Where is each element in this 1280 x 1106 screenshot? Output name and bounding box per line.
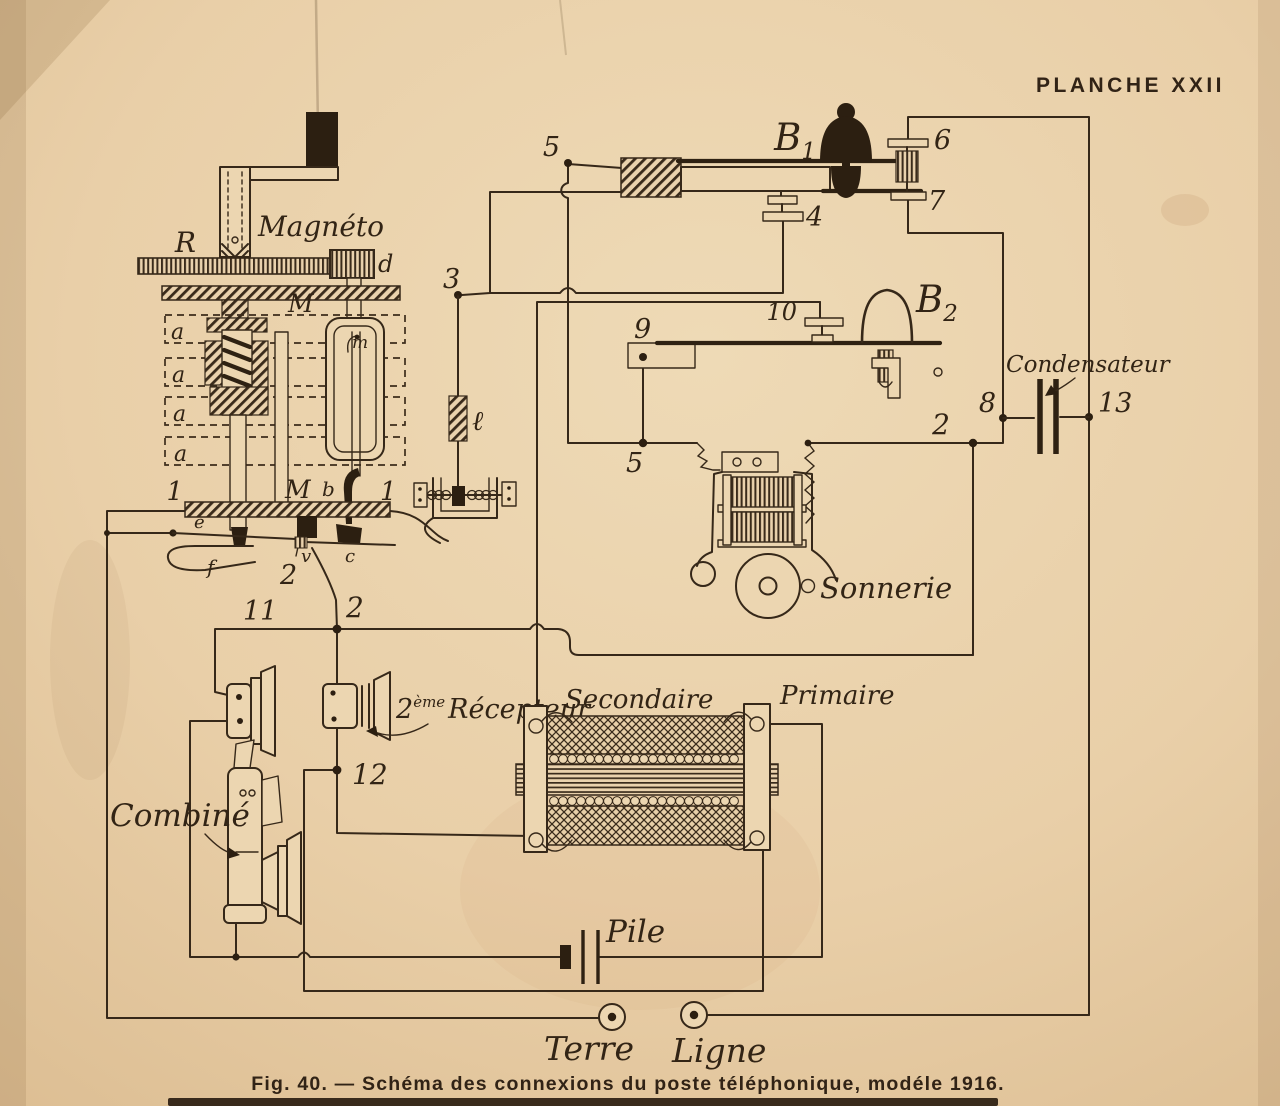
junction-5-mid [639,439,647,447]
secondary-winding [547,716,744,754]
crank-arm [250,167,338,180]
battery-plate-short [560,945,571,969]
label-primaire: Primaire [779,681,895,711]
handset-hook [262,776,282,826]
earpiece-body [227,684,251,738]
terminal-terre [599,1004,625,1030]
ringer-gong [736,554,800,618]
label-b-small: b [322,477,335,501]
ringer-coil-upper [730,477,795,507]
label-3: 3 [443,264,460,295]
label-v: v [301,546,311,567]
pinion-d [330,250,374,278]
crank-handle [306,112,338,168]
primary-winding [547,806,744,845]
junction-frame [104,530,110,536]
label-a: a [173,402,186,427]
label-e: e [194,512,205,533]
label-11: 11 [243,596,277,627]
handset-neck [234,740,254,768]
label-d: d [378,250,393,278]
label-l: ℓ [472,406,484,437]
junction-5-top [564,159,572,167]
label-terre: Terre [544,1029,634,1068]
label-b1: B [773,116,801,159]
mouthpiece-ring [262,852,278,910]
label-receiver-num: 2 [395,694,413,725]
label-a: a [172,363,185,388]
schematic-figure: PLANCHE XXII [0,0,1280,1106]
junction-9 [639,353,647,361]
label-2-left: 2 [345,591,364,624]
earpiece-cap [261,666,275,756]
label-6: 6 [934,125,951,156]
label-8: 8 [979,388,996,419]
label-4: 4 [805,202,823,233]
ringer-top-plate [722,452,778,472]
mouthpiece-horn [287,832,301,924]
label-b2-sub: 2 [942,301,958,327]
terminal-prim-top [750,717,764,731]
mouthpiece-ring2 [278,846,287,916]
terminal-prim-bottom [750,831,764,845]
label-m-upper: M [287,289,315,318]
core [516,764,778,795]
junction-2-right [969,439,977,447]
label-9: 9 [634,314,651,345]
label-b2: B [915,278,943,321]
induction-coil [516,704,778,852]
label-7: 7 [928,186,946,217]
lever-bar [681,167,830,191]
label-magneto: Magnéto [257,210,384,243]
junction-12 [333,766,342,775]
handset-base [224,905,266,923]
contact-v-block [297,516,317,538]
plate-header: PLANCHE XXII [1036,74,1225,97]
terminal-sec-top [529,719,543,733]
frame-bar-lower [185,502,390,517]
lever-pivot-block [621,158,681,197]
label-a: a [171,320,184,345]
label-pile: Pile [605,914,665,950]
label-b1-sub: 1 [801,139,816,165]
figure-caption: Fig. 40. — Schéma des connexions du post… [251,1073,1004,1095]
terminal-sec-bottom [529,833,543,847]
label-condensateur: Condensateur [1006,352,1172,378]
gear-rack [138,258,332,274]
label-ligne: Ligne [671,1031,766,1070]
junction-handset [232,953,239,960]
ringer-terminal [802,580,815,593]
label-combine: Combiné [110,798,250,834]
lever-coil [896,151,918,182]
label-10: 10 [766,298,797,326]
label-1-right: 1 [380,477,397,507]
label-2-contacts: 2 [279,560,297,591]
label-5-mid: 5 [626,448,643,479]
label-m-small: m [352,333,368,353]
label-12: 12 [352,758,388,791]
label-secondaire: Secondaire [565,685,713,715]
junction-2-left [333,625,342,634]
frame-bar-upper [162,286,400,300]
resistor-l [449,396,467,441]
label-5-top: 5 [543,132,560,163]
label-r: R [174,226,196,259]
ringer-coil-lower [730,512,795,542]
earpiece-ring [251,678,261,744]
label-m-lower: M [284,475,312,504]
label-c: c [345,546,355,567]
terminal-ligne [681,1002,707,1028]
label-a: a [174,442,187,467]
label-sonnerie: Sonnerie [820,571,952,605]
block-9 [628,343,695,368]
label-1-left: 1 [166,477,183,507]
scanned-plate-page: PLANCHE XXII [0,0,1280,1106]
label-receiver-sup: ème [413,693,445,711]
label-2-right: 2 [931,408,950,441]
scan-edge-strip [168,1098,998,1106]
label-13: 13 [1098,388,1132,419]
